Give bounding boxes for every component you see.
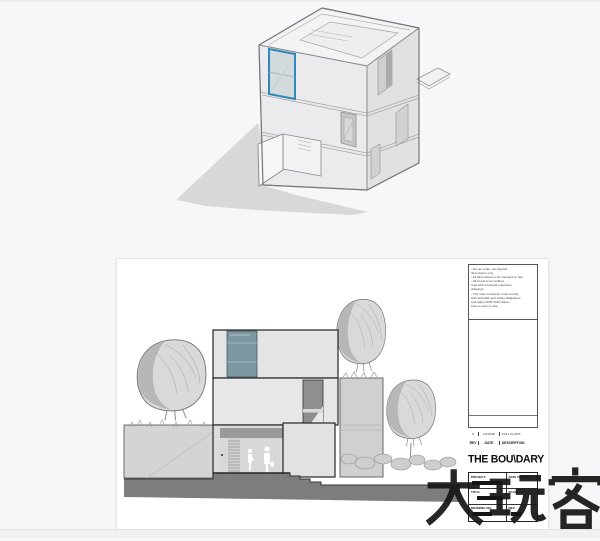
revision-entry-rev: A [468,432,478,436]
tree-right-upper [337,299,386,372]
house-3d-model [0,0,600,250]
revision-header-date: DATE [479,441,499,445]
revision-entry-description: FULL PLANS [500,432,538,436]
company-logo: THE BOU\DARY [468,453,538,466]
rev-value-bar [511,512,521,516]
project-value-bar [472,481,502,485]
tree-right-lower [387,380,436,446]
canopy-plane [417,68,450,89]
divider [506,473,507,521]
project-info-box: PROJECT: DATE OF ISSUE: TITLE: SCALE: DR… [468,472,538,522]
revision-entry-row: A 13/10/20 FULL PLANS [468,430,538,437]
revision-table-box [468,320,538,428]
stair-flight [228,438,240,476]
model-viewport[interactable] [0,0,600,250]
rev-label: REV: [508,506,515,510]
title-label: TITLE: [471,490,480,494]
title-block: - Do not scale, use figured dimensions o… [468,264,538,522]
watermark-char-ke [552,467,600,526]
divider [469,488,537,489]
selected-window-highlight[interactable] [269,49,295,99]
date-of-issue-label: DATE OF ISSUE: [508,475,532,479]
note-line: prior to start on site. [471,304,535,308]
revision-table-empty-row [469,415,537,427]
revision-header-rev: REV [468,441,478,445]
tree-left [137,340,206,421]
revision-header-description: DESCRIPTION [500,441,538,445]
title-value-bar [477,496,503,500]
notes-box: - Do not scale, use figured dimensions o… [468,264,538,320]
revision-header-row: REV DATE DESCRIPTION [468,439,538,447]
revision-entry-date: 13/10/20 [479,432,499,436]
divider [469,504,537,505]
scale-label: SCALE: [508,490,519,494]
drawing-no-value-bar [472,512,492,516]
drawing-sheet[interactable]: - Do not scale, use figured dimensions o… [117,259,548,530]
glazed-window [227,331,257,377]
project-label: PROJECT: [471,475,486,479]
drawing-no-label: DRAWING NO: [471,506,492,510]
